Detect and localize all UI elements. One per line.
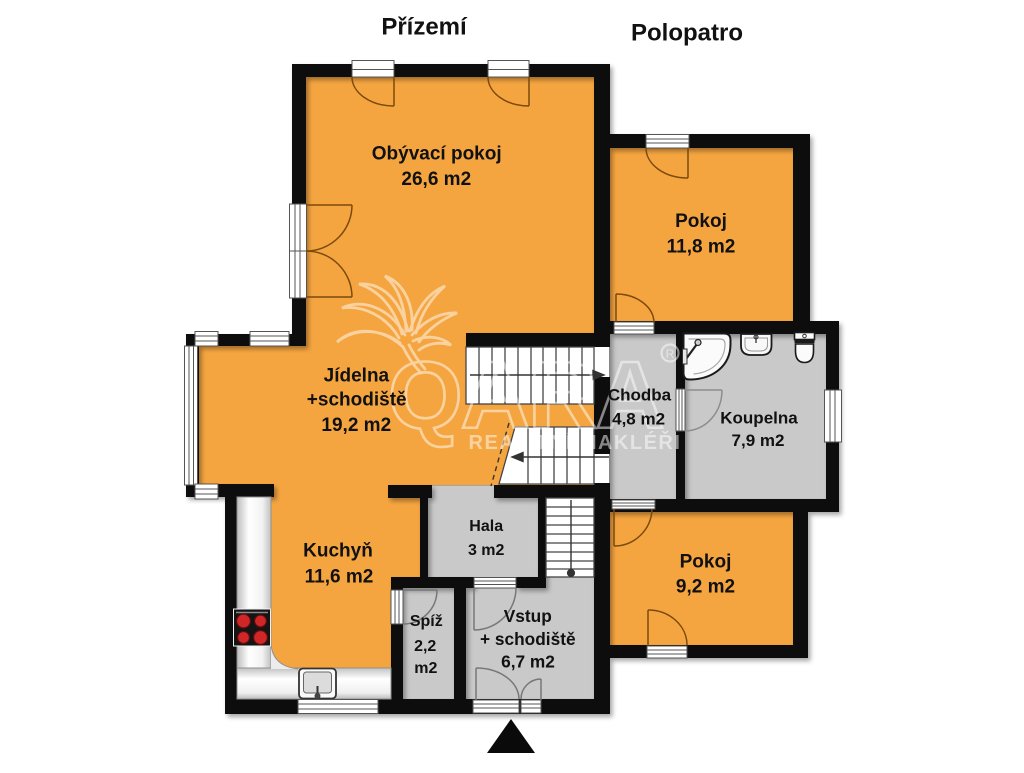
svg-text:Přízemí: Přízemí bbox=[381, 14, 468, 41]
svg-text:7,9 m2: 7,9 m2 bbox=[732, 431, 785, 450]
svg-text:REALITNÍ MAKLÉŘI: REALITNÍ MAKLÉŘI bbox=[469, 430, 682, 454]
svg-text:Polopatro: Polopatro bbox=[631, 20, 743, 47]
svg-text:11,8 m2: 11,8 m2 bbox=[667, 237, 736, 258]
svg-text:6,7 m2: 6,7 m2 bbox=[501, 652, 555, 672]
svg-text:+schodiště: +schodiště bbox=[307, 390, 407, 411]
svg-text:Pokoj: Pokoj bbox=[675, 211, 727, 232]
svg-text:Pokoj: Pokoj bbox=[680, 552, 732, 573]
svg-text:Vstup: Vstup bbox=[504, 606, 552, 626]
svg-text:11,6 m2: 11,6 m2 bbox=[305, 567, 374, 588]
svg-text:m2: m2 bbox=[414, 660, 437, 677]
svg-text:R: R bbox=[666, 347, 675, 361]
svg-text:Kuchyň: Kuchyň bbox=[303, 541, 373, 562]
svg-text:Chodba: Chodba bbox=[608, 386, 672, 405]
svg-text:+ schodiště: + schodiště bbox=[480, 629, 576, 649]
svg-text:Obývací pokoj: Obývací pokoj bbox=[372, 144, 502, 165]
svg-text:Spíž: Spíž bbox=[410, 613, 443, 630]
svg-text:19,2 m2: 19,2 m2 bbox=[321, 415, 391, 436]
svg-text:3 m2: 3 m2 bbox=[468, 542, 505, 559]
svg-text:Jídelna: Jídelna bbox=[324, 366, 390, 387]
svg-text:Koupelna: Koupelna bbox=[720, 408, 798, 427]
svg-text:26,6 m2: 26,6 m2 bbox=[401, 169, 471, 190]
svg-text:4,8 m2: 4,8 m2 bbox=[612, 409, 665, 428]
svg-text:Hala: Hala bbox=[469, 518, 503, 535]
svg-text:2,2: 2,2 bbox=[414, 638, 436, 655]
svg-text:9,2 m2: 9,2 m2 bbox=[676, 577, 735, 598]
